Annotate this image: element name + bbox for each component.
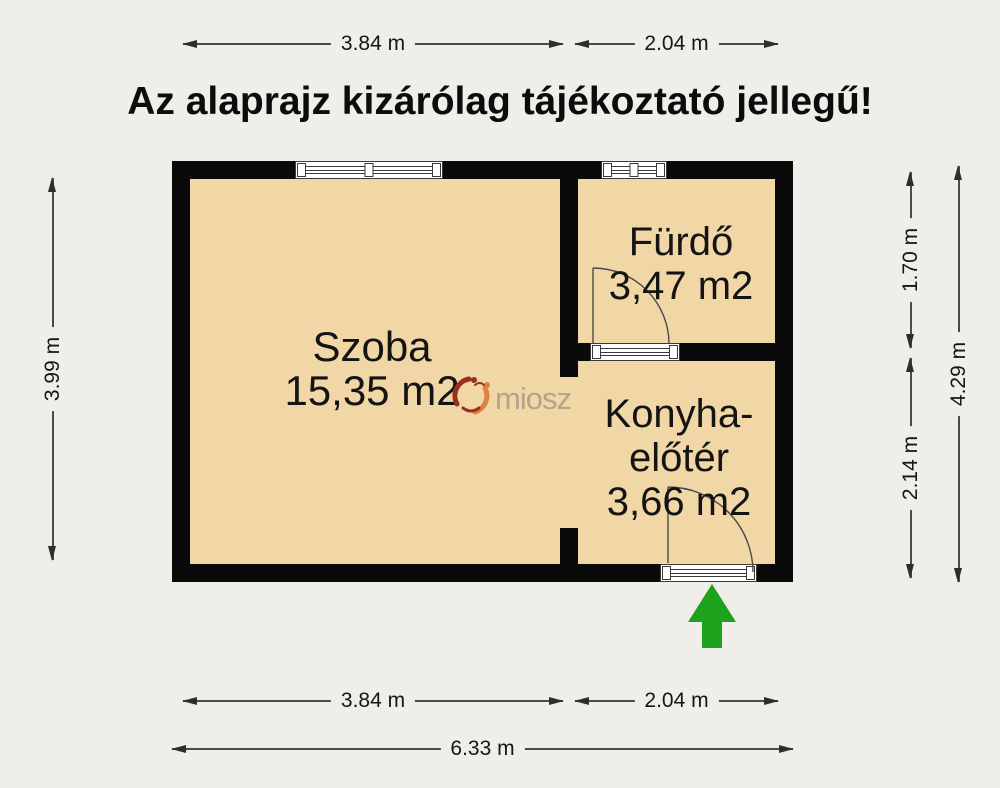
room-name: Szoba	[284, 325, 459, 369]
floor-plan-page: Az alaprajz kizárólag tájékoztató jelleg…	[0, 0, 1000, 788]
dimension-right-furdo-height: 1.70 m	[910, 172, 912, 348]
arrow-down-icon	[906, 564, 914, 579]
dimension-top-konyha-width: 2.04 m	[575, 43, 778, 45]
room-label-szoba: Szoba 15,35 m2	[284, 325, 459, 413]
entrance-arrow-icon	[680, 580, 744, 652]
dimension-label: 6.33 m	[440, 736, 524, 762]
arrow-left-icon	[574, 40, 589, 48]
arrow-left-icon	[574, 697, 589, 705]
dimension-label: 2.04 m	[634, 31, 718, 57]
room-area: 3,66 m2	[605, 480, 754, 524]
arrow-right-icon	[764, 40, 779, 48]
miosz-watermark-text: miosz	[495, 381, 571, 417]
dimension-label: 3.84 m	[331, 688, 415, 714]
arrow-down-icon	[906, 334, 914, 349]
arrow-right-icon	[779, 745, 794, 753]
arrow-right-icon	[549, 697, 564, 705]
arrow-left-icon	[182, 697, 197, 705]
dimension-label: 4.29 m	[946, 332, 972, 416]
miosz-logo-icon	[449, 374, 493, 418]
dimension-label: 2.04 m	[634, 688, 718, 714]
room-area: 15,35 m2	[284, 369, 459, 413]
arrow-up-icon	[48, 177, 56, 192]
dimension-left-szoba-height: 3.99 m	[52, 178, 54, 560]
dimension-bottom-konyha-width: 2.04 m	[575, 700, 778, 702]
room-label-konyha: Konyha- előtér 3,66 m2	[605, 392, 754, 524]
room-name: előtér	[605, 436, 754, 480]
dimension-label: 3.84 m	[331, 31, 415, 57]
room-area: 3,47 m2	[609, 264, 754, 308]
dimension-right-total-height: 4.29 m	[958, 166, 960, 582]
room-label-furdo: Fürdő 3,47 m2	[609, 220, 754, 308]
page-title: Az alaprajz kizárólag tájékoztató jelleg…	[0, 80, 1000, 124]
arrow-right-icon	[764, 697, 779, 705]
arrow-left-icon	[182, 40, 197, 48]
dimension-bottom-total-width: 6.33 m	[172, 748, 793, 750]
arrow-up-icon	[954, 165, 962, 180]
room-name: Fürdő	[609, 220, 754, 264]
arrow-left-icon	[171, 745, 186, 753]
dimension-label: 2.14 m	[898, 426, 924, 510]
arrow-down-icon	[48, 546, 56, 561]
arrow-up-icon	[906, 357, 914, 372]
dimension-label: 1.70 m	[898, 218, 924, 302]
room-name: Konyha-	[605, 392, 754, 436]
dimension-bottom-szoba-width: 3.84 m	[183, 700, 563, 702]
dimension-top-szoba-width: 3.84 m	[183, 43, 563, 45]
dimension-right-konyha-height: 2.14 m	[910, 358, 912, 578]
dimension-label: 3.99 m	[40, 327, 66, 411]
arrow-right-icon	[549, 40, 564, 48]
arrow-up-icon	[906, 171, 914, 186]
arrow-down-icon	[954, 568, 962, 583]
